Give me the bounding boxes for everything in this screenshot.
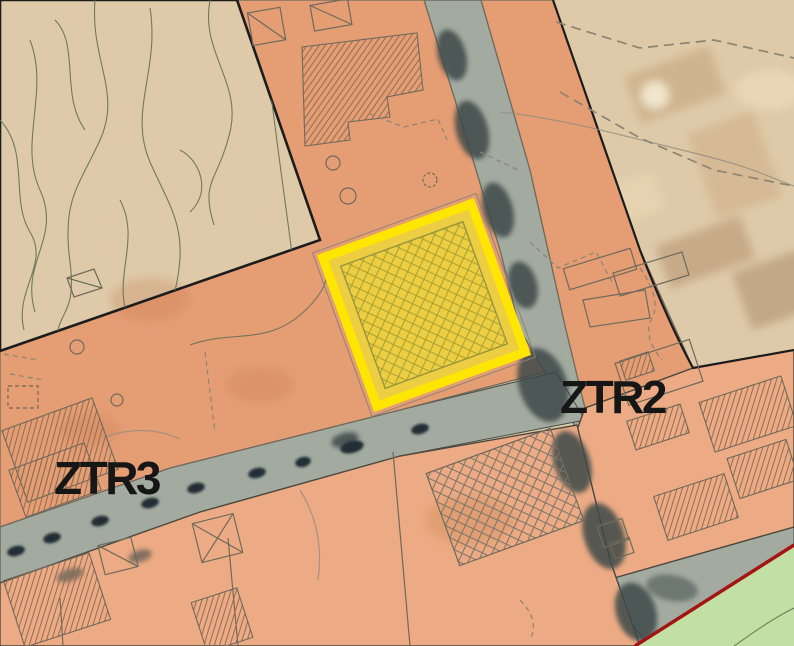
map-viewport[interactable]: ZTR2 ZTR3 (0, 0, 794, 646)
zone-label-ztr2: ZTR2 (560, 371, 666, 423)
zoning-map-canvas[interactable]: ZTR2 ZTR3 (0, 0, 794, 646)
zone-label-ztr3: ZTR3 (54, 452, 160, 504)
